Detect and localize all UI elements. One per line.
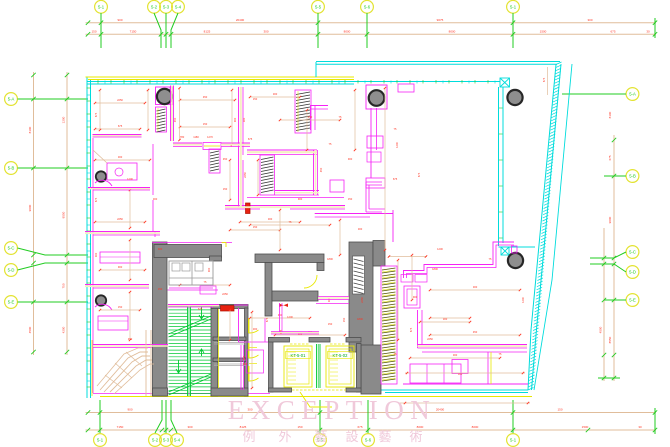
svg-text:例: 例 [242,429,255,444]
svg-text:450: 450 [128,337,133,341]
svg-text:900: 900 [298,197,303,201]
svg-text:675: 675 [393,177,398,181]
svg-text:5-D: 5-D [629,270,636,275]
svg-text:675: 675 [608,155,612,160]
svg-text:750: 750 [62,283,66,288]
svg-text:450: 450 [319,167,323,172]
svg-text:2250: 2250 [243,172,247,178]
svg-text:5-C: 5-C [8,246,15,251]
svg-text:300: 300 [473,285,478,289]
svg-text:450: 450 [223,157,228,161]
svg-text:5-6: 5-6 [364,4,371,9]
svg-text:900: 900 [127,408,132,412]
svg-text:150: 150 [158,287,163,291]
svg-text:5-5: 5-5 [315,4,322,9]
svg-text:675: 675 [265,317,269,322]
svg-text:1200: 1200 [437,247,443,251]
svg-text:8000: 8000 [344,30,351,34]
svg-text:900: 900 [348,157,353,161]
svg-text:675: 675 [118,124,123,128]
svg-text:5-4: 5-4 [175,4,182,9]
svg-text:150: 150 [297,425,302,429]
svg-text:150: 150 [557,408,562,412]
svg-text:外: 外 [278,429,291,444]
svg-text:5-A: 5-A [8,97,15,102]
svg-text:75: 75 [329,142,332,146]
svg-text:675: 675 [94,197,98,202]
svg-text:2250: 2250 [222,292,228,296]
svg-text:900: 900 [207,267,211,272]
svg-text:450: 450 [308,115,313,119]
svg-text:5-D: 5-D [8,268,15,273]
svg-text:7150: 7150 [130,30,137,34]
svg-text:5-A: 5-A [629,92,636,97]
svg-text:300: 300 [253,327,258,331]
svg-text:5-1: 5-1 [510,4,517,9]
svg-text:2250: 2250 [427,337,433,341]
svg-text:5-4: 5-4 [174,438,181,443]
svg-text:5-B: 5-B [629,174,636,179]
svg-text:術: 術 [409,429,422,444]
svg-text:300: 300 [153,197,158,201]
svg-text:300: 300 [187,425,192,429]
svg-text:2250: 2250 [117,98,123,102]
svg-text:900: 900 [158,247,163,251]
svg-text:75: 75 [204,280,207,284]
svg-text:675: 675 [610,30,615,34]
svg-text:300: 300 [242,117,246,122]
svg-text:1200: 1200 [287,315,293,319]
svg-text:1800: 1800 [432,267,438,271]
svg-text:900: 900 [413,295,418,299]
svg-text:300: 300 [458,372,463,376]
svg-text:675: 675 [198,307,203,311]
svg-text:5-E: 5-E [629,298,636,303]
svg-text:4500: 4500 [28,326,32,333]
svg-text:EXCEPTION: EXCEPTION [228,395,437,425]
svg-text:900: 900 [242,355,246,360]
svg-text:150: 150 [253,97,258,101]
svg-text:300: 300 [453,353,458,357]
svg-text:1200: 1200 [62,116,66,123]
svg-text:450: 450 [203,95,208,99]
svg-text:300: 300 [94,252,98,257]
svg-text:5-C: 5-C [629,250,636,255]
svg-text:675: 675 [409,327,413,332]
svg-text:1200: 1200 [127,177,133,181]
svg-text:675: 675 [248,137,253,141]
svg-text:150: 150 [253,225,258,229]
svg-text:780: 780 [180,135,185,139]
svg-text:300: 300 [118,155,123,159]
svg-text:5-2: 5-2 [151,4,158,9]
svg-text:75: 75 [394,352,397,356]
svg-text:150: 150 [342,317,346,322]
svg-text:300: 300 [443,317,448,321]
svg-text:150: 150 [328,322,333,326]
svg-text:675: 675 [94,112,98,117]
svg-text:75: 75 [489,257,492,261]
svg-text:675: 675 [542,77,546,82]
svg-text:150: 150 [348,197,353,201]
svg-text:450: 450 [243,362,248,366]
svg-text:1500: 1500 [540,30,547,34]
svg-text:5-3: 5-3 [163,4,170,9]
svg-text:1800: 1800 [327,257,333,261]
svg-text:5-B: 5-B [8,166,15,171]
svg-text:30: 30 [638,425,642,429]
svg-text:9000: 9000 [608,216,612,223]
svg-text:300: 300 [358,227,363,231]
svg-text:8000: 8000 [472,425,479,429]
svg-text:KT-5-02: KT-5-02 [333,353,349,358]
svg-text:7150: 7150 [117,425,124,429]
svg-text:9075: 9075 [437,18,444,22]
svg-text:2250: 2250 [117,217,123,221]
svg-text:675: 675 [279,329,283,334]
svg-text:5-1: 5-1 [98,4,105,9]
svg-text:75: 75 [339,115,342,119]
svg-text:900: 900 [233,117,237,122]
svg-text:5-1: 5-1 [510,438,517,443]
svg-text:150: 150 [91,30,96,34]
svg-text:300: 300 [587,18,592,22]
svg-text:藝: 藝 [314,429,327,444]
svg-text:150: 150 [203,122,208,126]
svg-text:30: 30 [646,30,650,34]
svg-text:4500: 4500 [599,326,603,333]
svg-text:8550: 8550 [608,336,612,343]
svg-text:450: 450 [173,117,177,122]
svg-text:300: 300 [273,92,278,96]
svg-text:1180: 1180 [193,135,199,139]
svg-text:設: 設 [345,429,358,444]
svg-text:150: 150 [223,187,228,191]
svg-text:1800: 1800 [357,317,363,321]
svg-text:8125: 8125 [204,30,211,34]
svg-text:20400: 20400 [236,18,245,22]
svg-text:1200: 1200 [395,142,399,148]
svg-text:9000: 9000 [28,204,32,211]
svg-text:75: 75 [394,127,397,131]
svg-text:900: 900 [118,265,123,269]
svg-text:8100: 8100 [608,111,612,118]
svg-text:1500: 1500 [582,425,589,429]
svg-text:900: 900 [117,18,122,22]
svg-text:5-E: 5-E [8,300,15,305]
svg-text:4200: 4200 [62,326,66,333]
svg-text:300: 300 [263,30,268,34]
svg-text:2250: 2250 [360,297,364,303]
svg-text:KT-5-01: KT-5-01 [291,353,307,358]
svg-text:5-6: 5-6 [365,438,372,443]
svg-text:675: 675 [417,172,421,177]
svg-text:1200: 1200 [521,297,525,303]
svg-text:5-2: 5-2 [152,438,159,443]
svg-text:5-3: 5-3 [163,438,170,443]
svg-text:150: 150 [118,305,123,309]
svg-text:8550: 8550 [62,211,66,218]
svg-text:75: 75 [499,352,502,356]
svg-text:20400: 20400 [436,408,445,412]
svg-text:8100: 8100 [28,126,32,133]
svg-text:1270: 1270 [207,135,213,139]
svg-text:5-1: 5-1 [97,438,104,443]
svg-text:300: 300 [268,217,273,221]
svg-text:450: 450 [473,330,478,334]
svg-text:8000: 8000 [449,30,456,34]
svg-text:藝: 藝 [378,429,391,444]
